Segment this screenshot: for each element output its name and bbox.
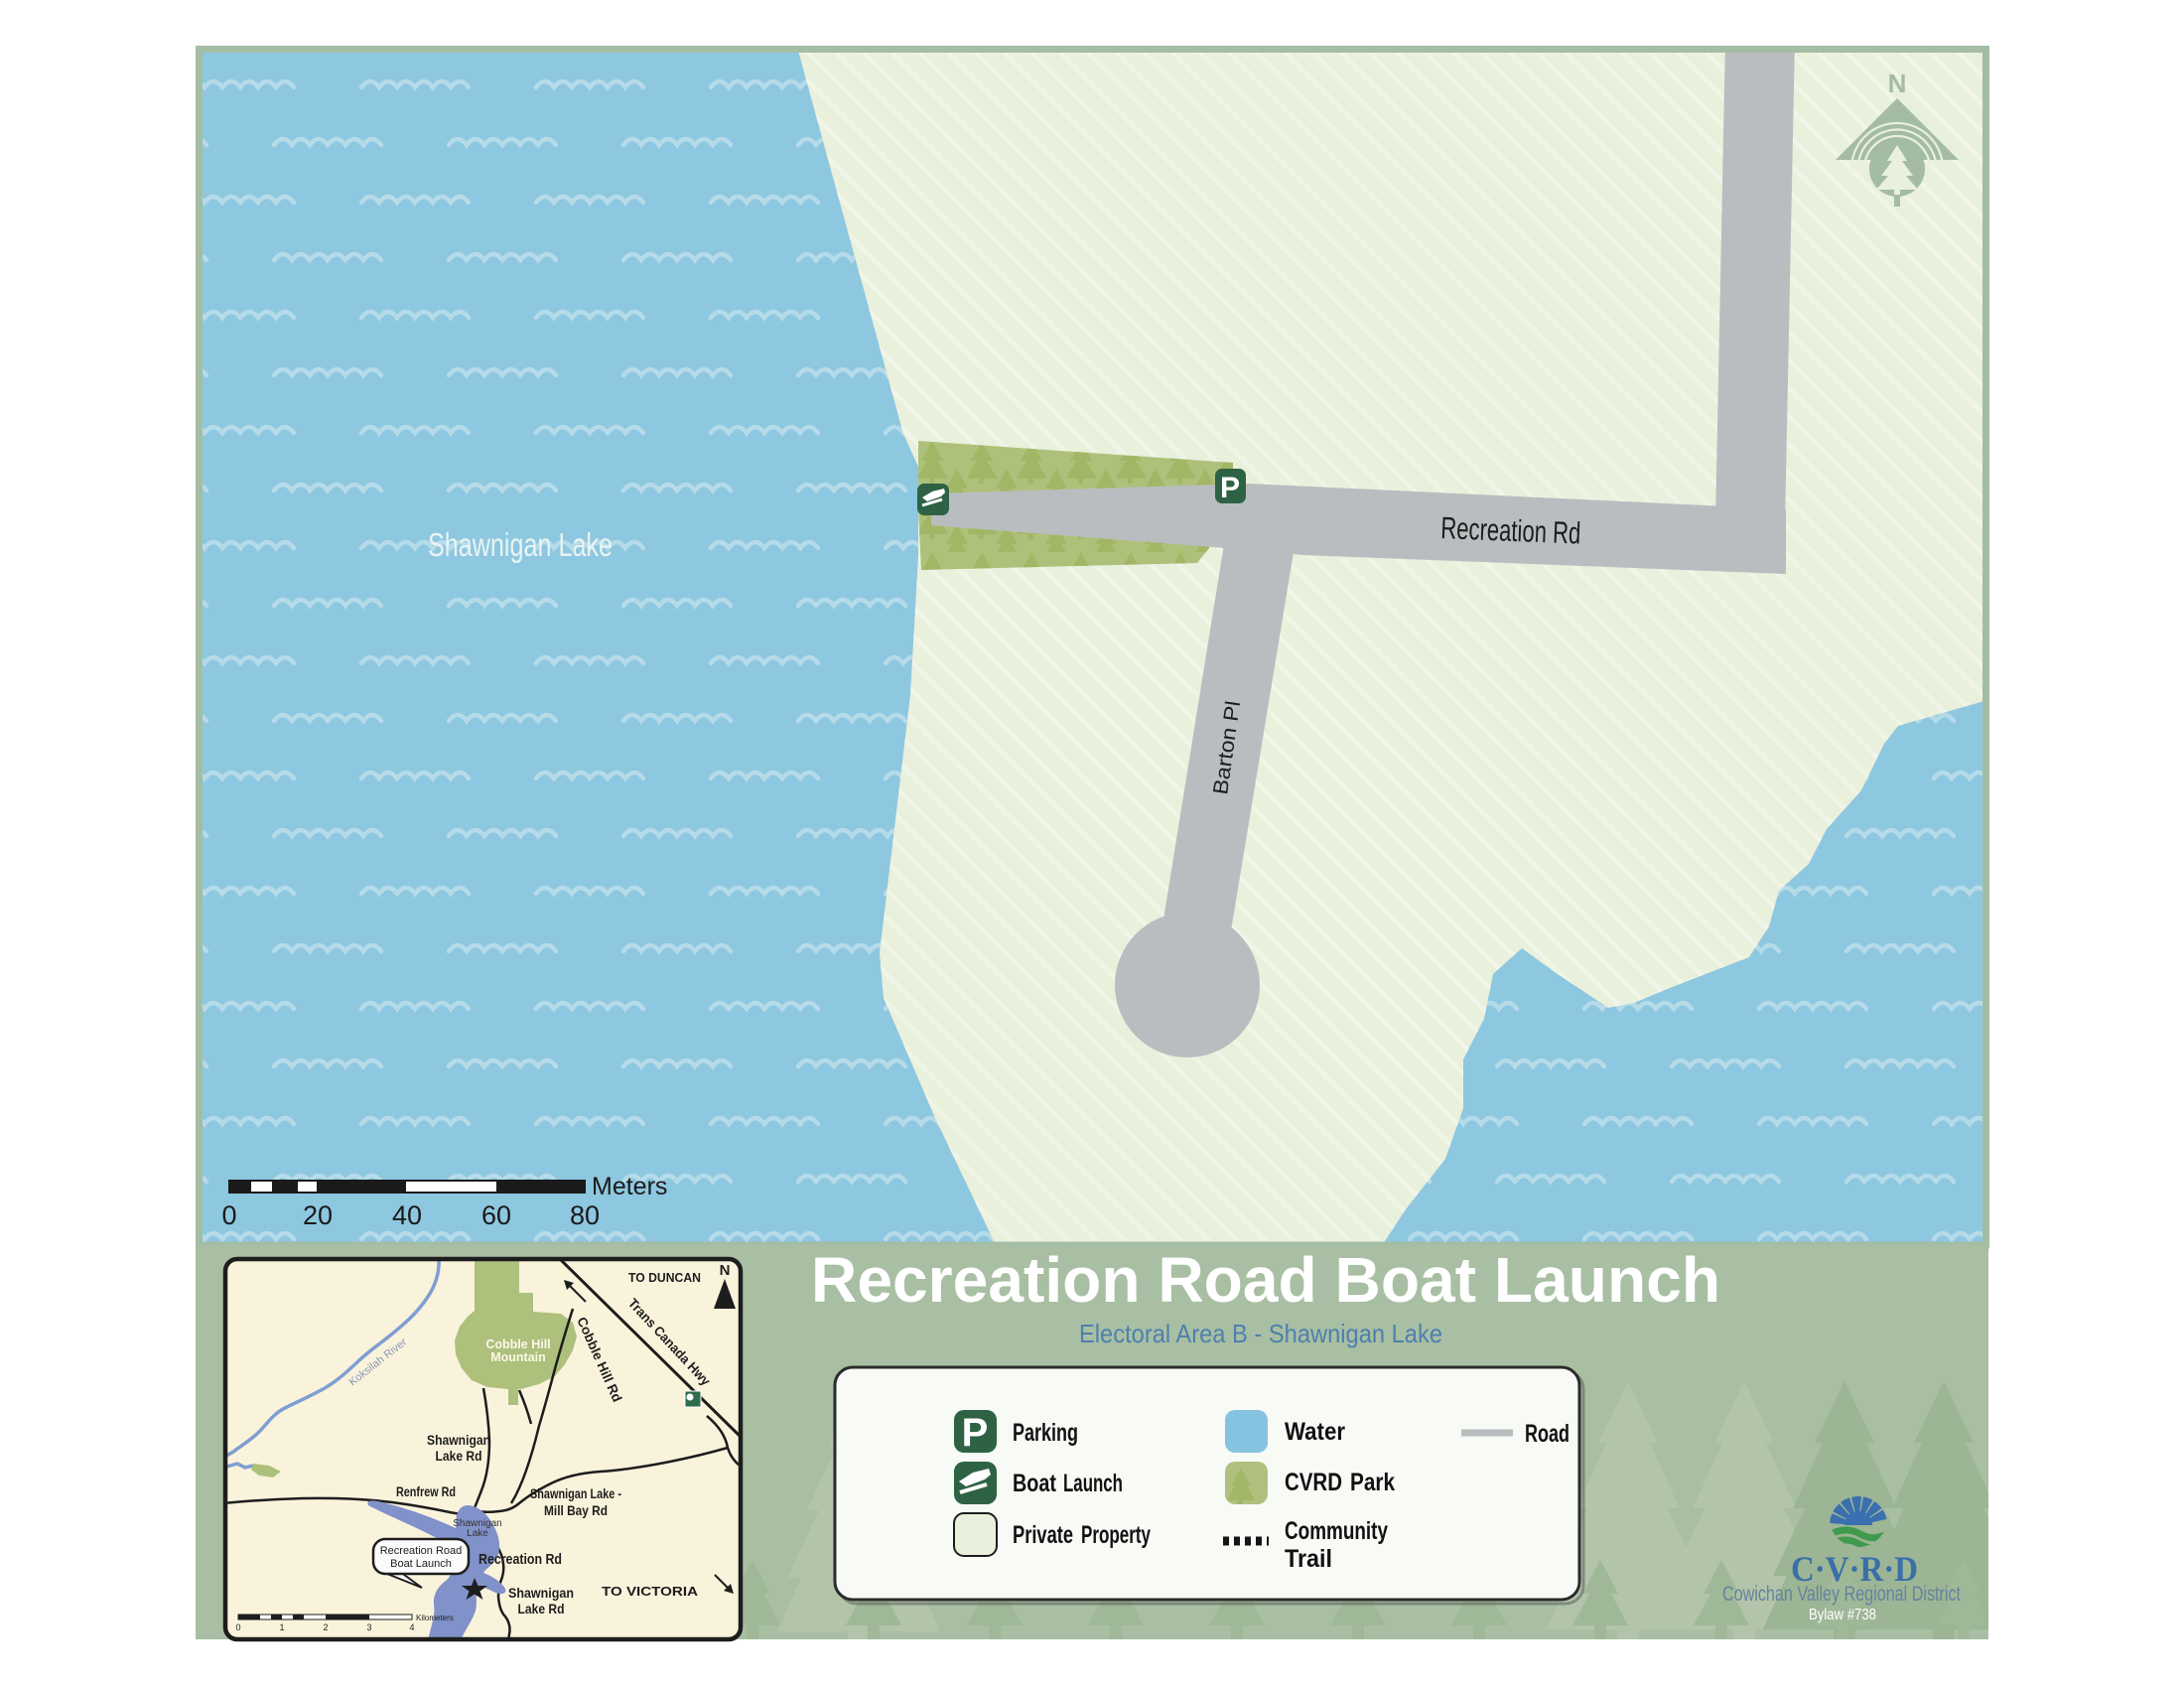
svg-text:Mountain: Mountain: [490, 1350, 546, 1364]
svg-text:P: P: [962, 1411, 989, 1455]
svg-text:Community: Community: [1285, 1517, 1388, 1545]
svg-text:Boat Launch: Boat Launch: [390, 1558, 452, 1570]
svg-text:Parking: Parking: [1013, 1419, 1078, 1447]
svg-text:Electoral Area B - Shawnigan L: Electoral Area B - Shawnigan Lake: [1079, 1319, 1442, 1348]
svg-text:3: 3: [366, 1622, 371, 1632]
svg-text:60: 60: [481, 1200, 511, 1230]
svg-text:Recreation Road: Recreation Road: [380, 1545, 463, 1557]
svg-text:TO VICTORIA: TO VICTORIA: [602, 1584, 699, 1599]
svg-text:2: 2: [323, 1622, 328, 1632]
svg-text:4: 4: [409, 1622, 414, 1632]
svg-text:Cowichan Valley Regional Distr: Cowichan Valley Regional District: [1722, 1583, 1961, 1606]
svg-text:Bylaw #738: Bylaw #738: [1809, 1607, 1876, 1623]
svg-text:1: 1: [279, 1622, 284, 1632]
svg-text:P: P: [1220, 472, 1240, 504]
svg-text:Private: Private: [1013, 1521, 1073, 1549]
svg-text:TO DUNCAN: TO DUNCAN: [628, 1270, 701, 1285]
svg-text:Water: Water: [1285, 1418, 1345, 1446]
svg-text:Recreation Rd: Recreation Rd: [478, 1551, 562, 1568]
svg-text:40: 40: [392, 1200, 422, 1230]
svg-text:Cobble Hill: Cobble Hill: [485, 1337, 550, 1351]
svg-text:80: 80: [570, 1200, 600, 1230]
svg-text:Lake: Lake: [467, 1528, 488, 1539]
svg-text:Shawnigan Lake -: Shawnigan Lake -: [530, 1485, 621, 1501]
svg-text:CVRD: CVRD: [1285, 1469, 1342, 1496]
svg-text:Mill Bay Rd: Mill Bay Rd: [544, 1502, 608, 1518]
svg-text:Renfrew Rd: Renfrew Rd: [396, 1483, 456, 1499]
svg-text:Shawnigan: Shawnigan: [508, 1585, 574, 1601]
svg-text:Recreation Rd: Recreation Rd: [1440, 510, 1581, 551]
svg-text:Meters: Meters: [592, 1173, 667, 1200]
svg-text:Shawnigan: Shawnigan: [427, 1432, 490, 1448]
svg-text:Boat: Boat: [1013, 1470, 1057, 1497]
svg-text:Launch: Launch: [1063, 1470, 1123, 1497]
svg-text:N: N: [1888, 69, 1907, 98]
svg-text:Park: Park: [1350, 1469, 1395, 1496]
svg-text:Road: Road: [1525, 1420, 1570, 1448]
svg-text:Kilometers: Kilometers: [416, 1614, 454, 1622]
svg-text:Trail: Trail: [1285, 1545, 1332, 1573]
svg-text:0: 0: [235, 1622, 240, 1632]
svg-text:Shawnigan Lake: Shawnigan Lake: [428, 526, 613, 563]
svg-text:Recreation Road Boat Launch: Recreation Road Boat Launch: [811, 1244, 1720, 1316]
svg-text:20: 20: [303, 1200, 333, 1230]
svg-text:Lake Rd: Lake Rd: [518, 1601, 565, 1617]
svg-text:Lake Rd: Lake Rd: [436, 1448, 482, 1464]
svg-text:0: 0: [221, 1200, 236, 1230]
svg-text:Property: Property: [1081, 1521, 1151, 1549]
svg-text:N: N: [720, 1262, 731, 1279]
